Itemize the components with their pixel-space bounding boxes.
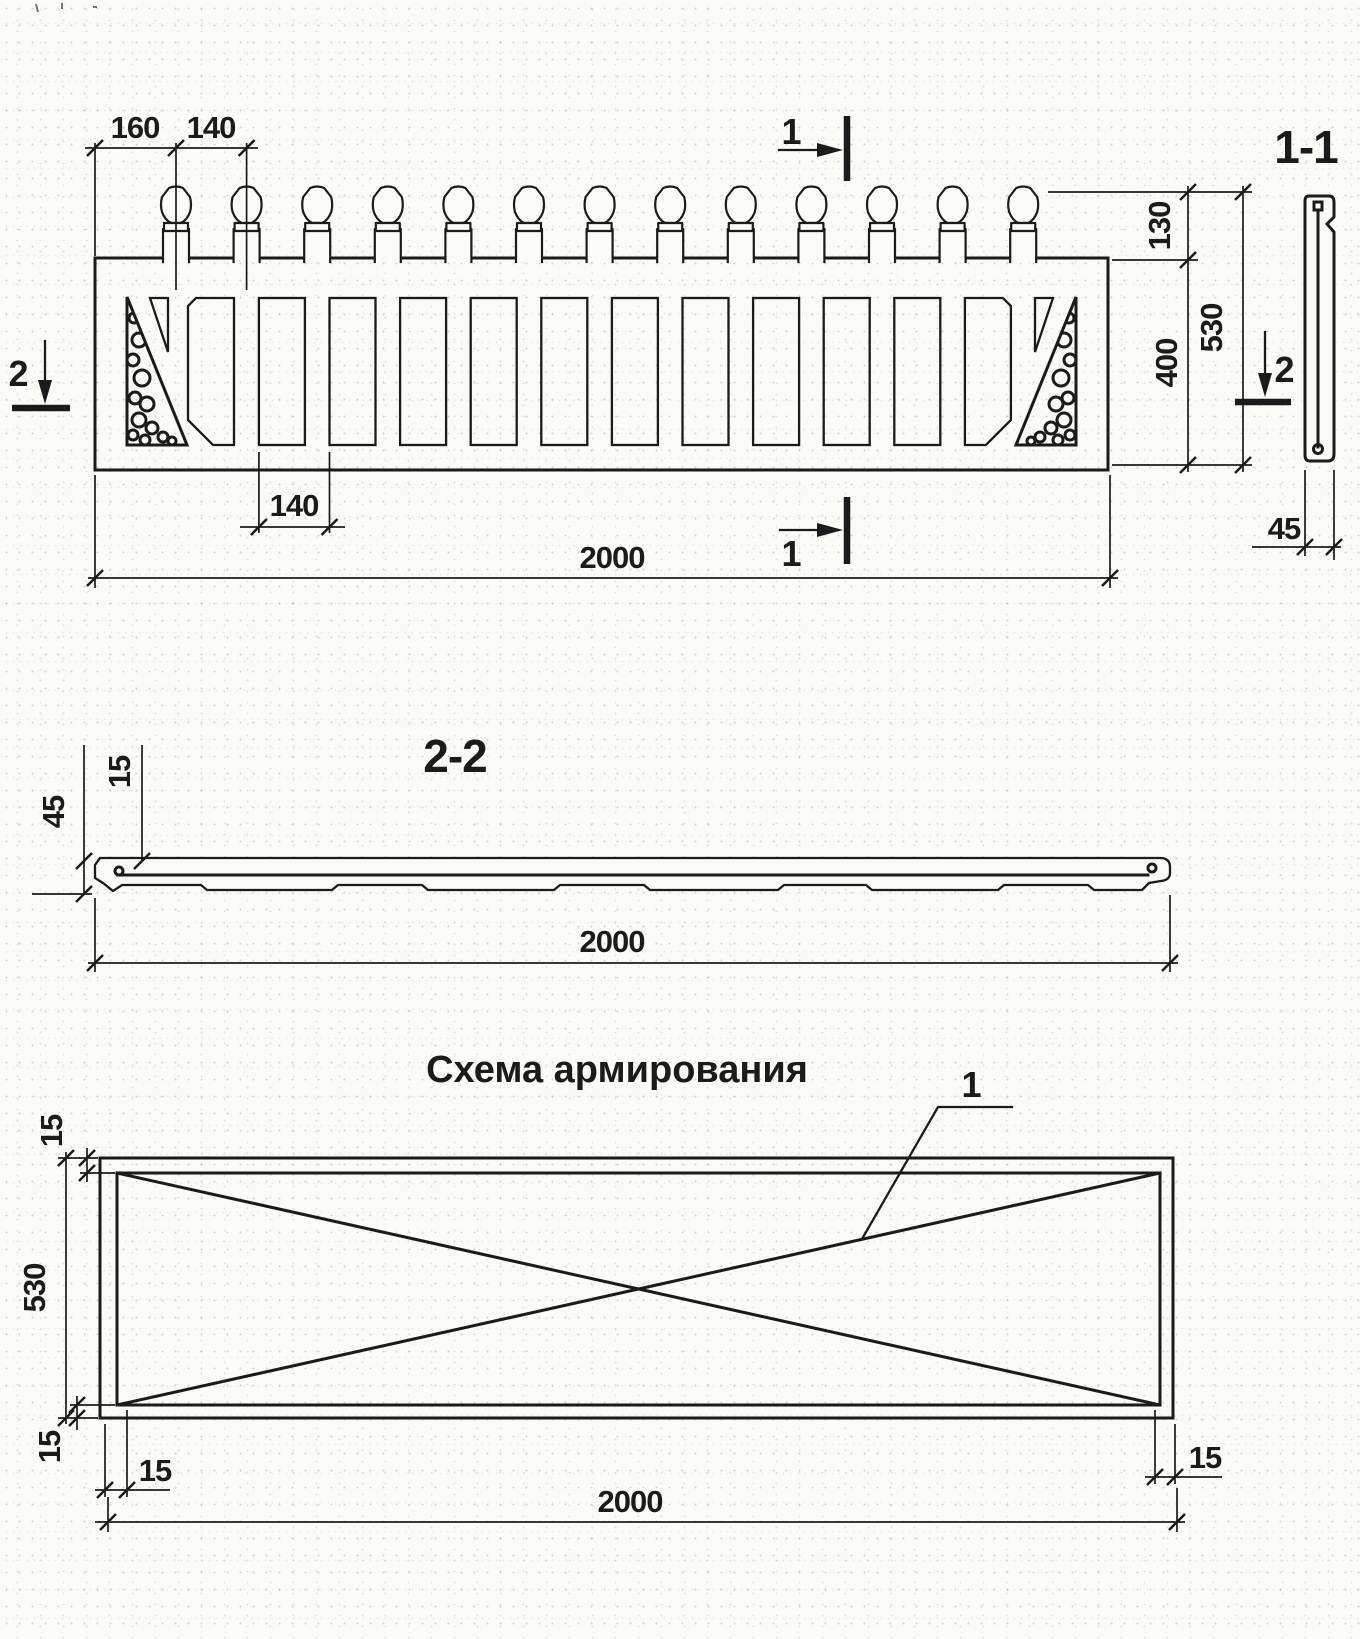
opening bbox=[753, 298, 799, 445]
dim-label-45: 45 bbox=[1268, 511, 1301, 546]
dim-label-160: 160 bbox=[111, 110, 160, 145]
pickets bbox=[161, 187, 1038, 263]
dim-label-15-top: 15 bbox=[34, 1114, 69, 1147]
section-label-1-top: 1 bbox=[781, 111, 801, 152]
opening bbox=[188, 298, 234, 445]
opening bbox=[541, 298, 587, 445]
rebar-cross-section bbox=[1314, 202, 1322, 210]
section-1-1-dimensions: 45 bbox=[1252, 470, 1342, 560]
opening bbox=[259, 298, 305, 445]
opening bbox=[683, 298, 729, 445]
scan-artifact bbox=[36, 3, 97, 12]
opening bbox=[400, 298, 446, 445]
picket bbox=[796, 187, 826, 263]
wedge-slot bbox=[1035, 298, 1053, 352]
opening bbox=[965, 298, 1011, 445]
opening bbox=[824, 298, 870, 445]
section-2-2-view: 2-2 15 45 2000 bbox=[32, 730, 1178, 972]
picket bbox=[867, 187, 897, 263]
dim-label-140-bottom: 140 bbox=[270, 488, 319, 523]
section-2-2-title: 2-2 bbox=[423, 730, 486, 782]
section-marker-2-left: 2 bbox=[8, 341, 70, 408]
picket bbox=[443, 187, 473, 263]
section-arrow-icon bbox=[38, 380, 52, 404]
picket bbox=[585, 187, 615, 263]
section-arrow-icon bbox=[817, 523, 843, 537]
section-label-2-left: 2 bbox=[8, 353, 27, 394]
picket bbox=[1008, 187, 1038, 263]
section-label-1-bottom: 1 bbox=[781, 533, 801, 574]
callout-1: 1 bbox=[862, 1064, 1012, 1239]
opening bbox=[330, 298, 376, 445]
section-arrow-icon bbox=[817, 143, 843, 157]
opening bbox=[894, 298, 940, 445]
picket bbox=[514, 187, 544, 263]
dim-label-15-bottom-left: 15 bbox=[139, 1453, 172, 1488]
dim-label-15-bottom-right: 15 bbox=[1189, 1440, 1222, 1475]
panel-openings bbox=[150, 298, 1053, 445]
dim-label-140-top: 140 bbox=[187, 110, 236, 145]
dim-label-15-left: 15 bbox=[32, 1430, 67, 1463]
dim-label-2000: 2000 bbox=[580, 924, 645, 959]
opening bbox=[471, 298, 517, 445]
section-1-1-title: 1-1 bbox=[1274, 121, 1338, 173]
reinforcement-title: Схема армирования bbox=[426, 1049, 808, 1091]
picket bbox=[373, 187, 403, 263]
wedge-slot bbox=[150, 298, 168, 352]
picket bbox=[938, 187, 968, 263]
dim-label-530: 530 bbox=[17, 1264, 52, 1313]
dim-label-530: 530 bbox=[1194, 304, 1229, 353]
picket bbox=[655, 187, 685, 263]
dim-label-130: 130 bbox=[1142, 202, 1177, 251]
dim-label-15: 15 bbox=[102, 755, 137, 788]
dim-label-2000: 2000 bbox=[598, 1484, 663, 1519]
picket bbox=[726, 187, 756, 263]
dim-label-400: 400 bbox=[1149, 339, 1184, 388]
fence-elevation-view: 160 140 140 2000 bbox=[8, 110, 1293, 588]
reinforcement-scheme-view: Схема армирования 1 530 15 bbox=[17, 1049, 1222, 1532]
dim-label-45: 45 bbox=[36, 795, 71, 828]
callout-label: 1 bbox=[961, 1064, 981, 1105]
section-marker-1-top: 1 bbox=[779, 111, 847, 181]
reinforcement-dimensions: 530 15 15 15 15 bbox=[17, 1114, 1222, 1532]
opening bbox=[612, 298, 658, 445]
picket bbox=[302, 187, 332, 263]
section-arrow-icon bbox=[1258, 373, 1272, 397]
dim-label-2000: 2000 bbox=[580, 540, 645, 575]
section-label-2-right: 2 bbox=[1274, 349, 1293, 390]
technical-drawing: 160 140 140 2000 bbox=[0, 0, 1360, 1639]
section-marker-1-bottom: 1 bbox=[780, 497, 847, 574]
